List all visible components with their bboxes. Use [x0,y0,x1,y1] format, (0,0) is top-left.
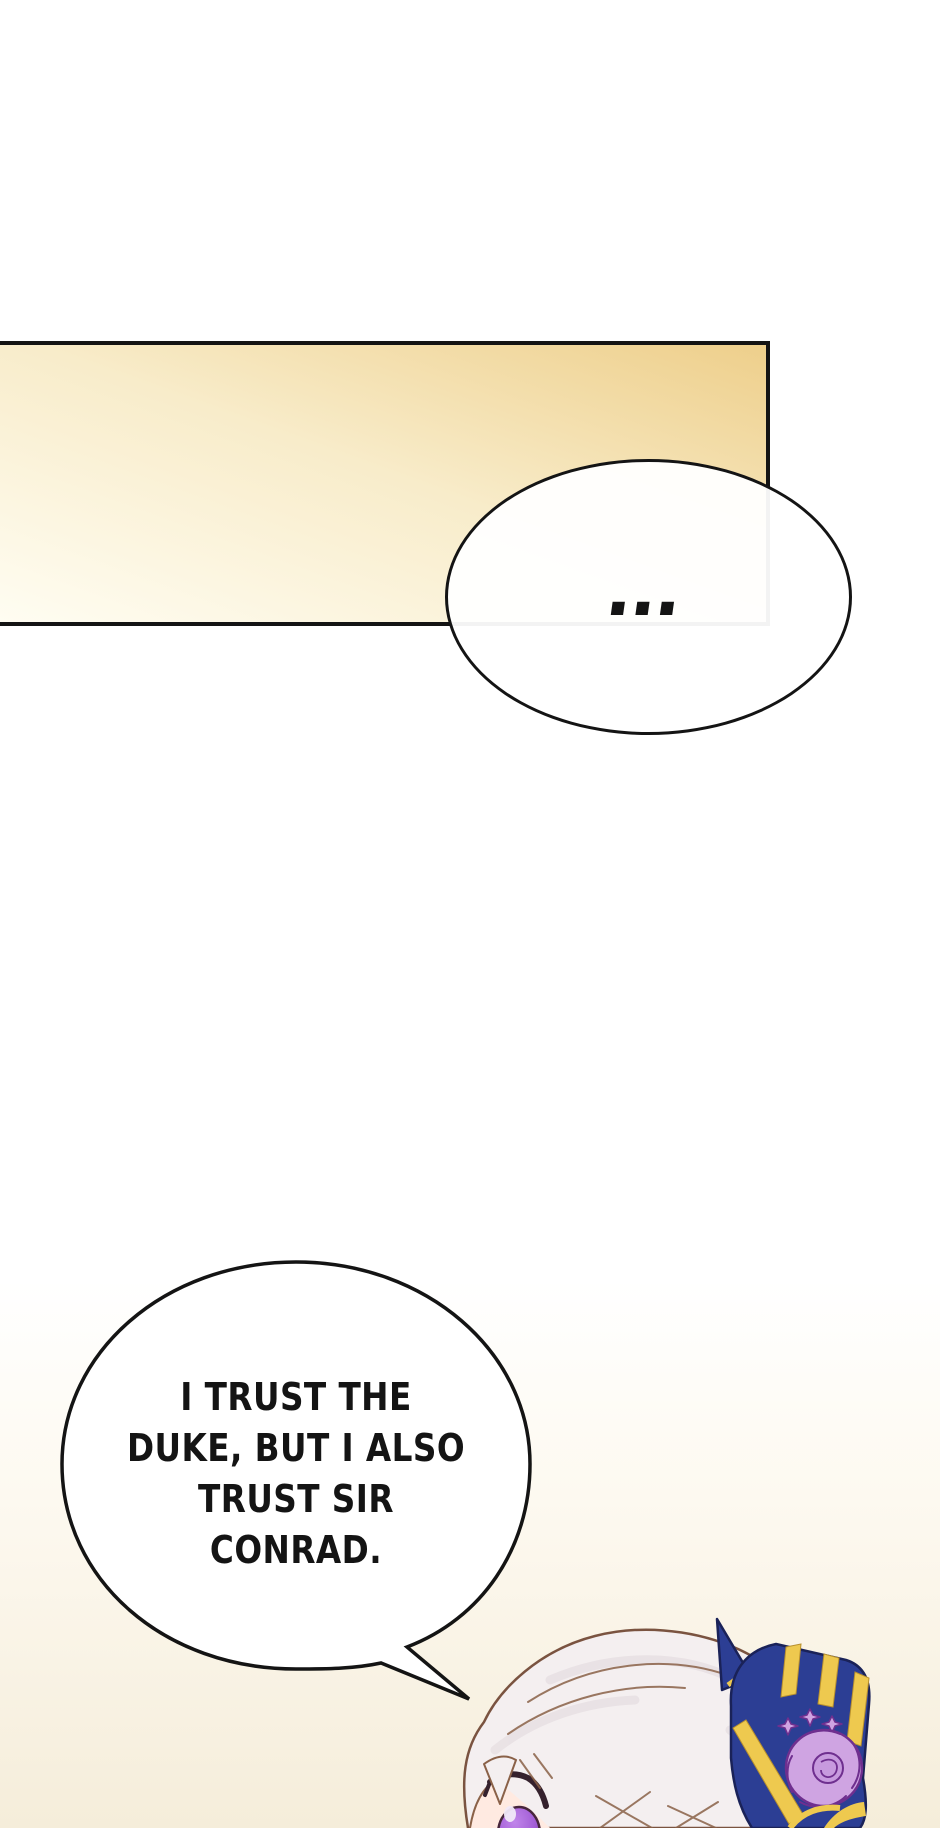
speech-line: I TRUST THE [95,1372,497,1423]
comic-page: ... I TRUST THE DUKE, BUT I ALSO TRUST S… [0,0,940,1828]
speech-bubble-ellipsis: ... [445,459,852,735]
speech-line: CONRAD. [95,1525,497,1576]
character-illustration [400,1610,940,1828]
ellipsis-text: ... [601,550,686,632]
speech-bubble-trust-text: I TRUST THE DUKE, BUT I ALSO TRUST SIR C… [95,1372,497,1576]
speech-line: TRUST SIR [95,1474,497,1525]
rose-center [813,1753,843,1783]
eye-highlight [504,1806,516,1822]
speech-line: DUKE, BUT I ALSO [95,1423,497,1474]
